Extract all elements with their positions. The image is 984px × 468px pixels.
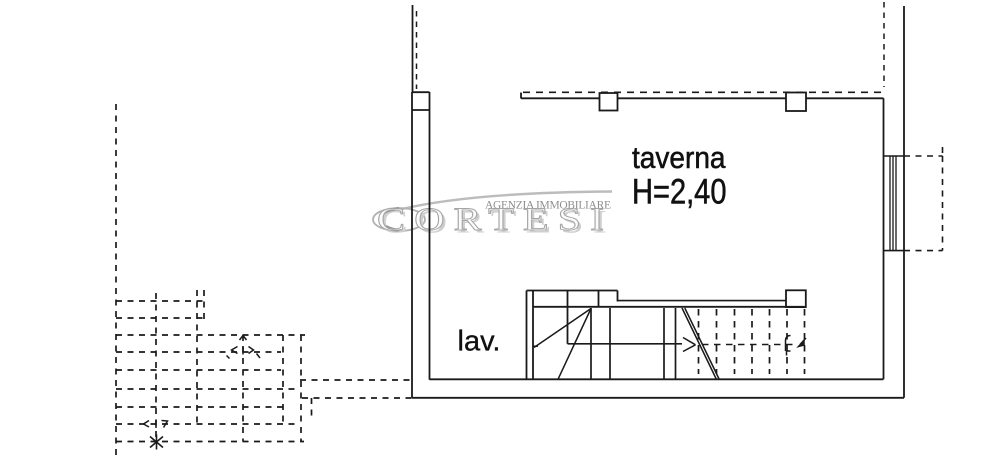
svg-text:lav.: lav. bbox=[458, 326, 501, 358]
svg-text:taverna: taverna bbox=[632, 140, 726, 175]
svg-text:H=2,40: H=2,40 bbox=[632, 173, 727, 212]
